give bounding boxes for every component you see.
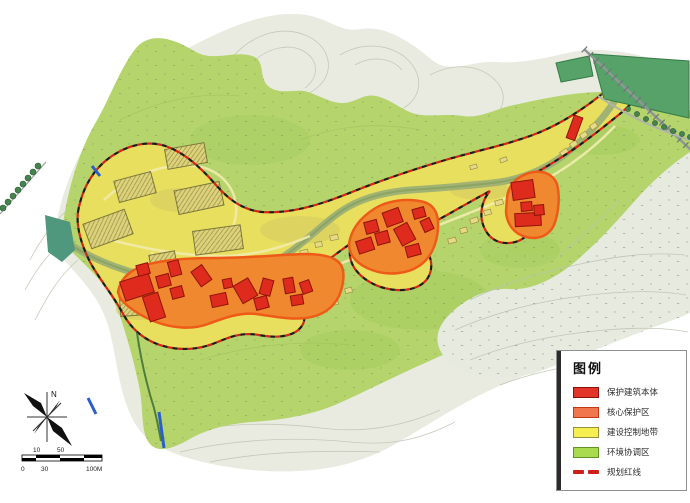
compass-rose: N	[24, 390, 72, 446]
legend-label: 核心保护区	[607, 406, 650, 418]
tree-lined-road-west	[0, 162, 46, 214]
legend-panel: 图例 保护建筑本体 核心保护区 建设控制地带 环境协调区 规划红线	[556, 350, 687, 491]
legend-title: 图例	[573, 358, 680, 377]
scale-label-30: 30	[41, 466, 49, 473]
legend-swatch-construction-control-zone	[573, 427, 599, 438]
scale-bar: 10 50 0 30 100M	[21, 447, 102, 473]
legend-swatch-environment-coordination-zone	[573, 447, 599, 458]
legend-accent-bar	[557, 351, 561, 490]
water-segment-1	[88, 398, 96, 414]
scale-label-50: 50	[57, 447, 65, 454]
west-features	[0, 162, 46, 214]
scale-label-10: 10	[33, 447, 41, 454]
compass-north-label: N	[51, 390, 57, 399]
legend-label: 保护建筑本体	[607, 386, 658, 398]
legend-swatch-planning-red-line	[573, 470, 599, 474]
legend-label: 建设控制地带	[607, 426, 658, 438]
legend-swatch-protected-building	[573, 387, 599, 398]
scale-label-0: 0	[21, 466, 25, 473]
legend-item-core-protection-zone: 核心保护区	[573, 406, 680, 418]
legend-item-construction-control-zone: 建设控制地带	[573, 426, 680, 438]
legend-label: 环境协调区	[607, 446, 650, 458]
planning-map-page: N 10 50 0 30 100M 图例 保护建筑本体 核心保护区 建设控制地带	[0, 0, 690, 503]
legend-swatch-core-protection-zone	[573, 407, 599, 418]
legend-item-environment-coordination-zone: 环境协调区	[573, 446, 680, 458]
tree-row-west	[0, 163, 41, 211]
legend-label: 规划红线	[607, 466, 641, 478]
legend-item-protected-building: 保护建筑本体	[573, 386, 680, 398]
legend-item-planning-red-line: 规划红线	[573, 466, 680, 478]
scale-label-100m: 100M	[86, 466, 102, 473]
